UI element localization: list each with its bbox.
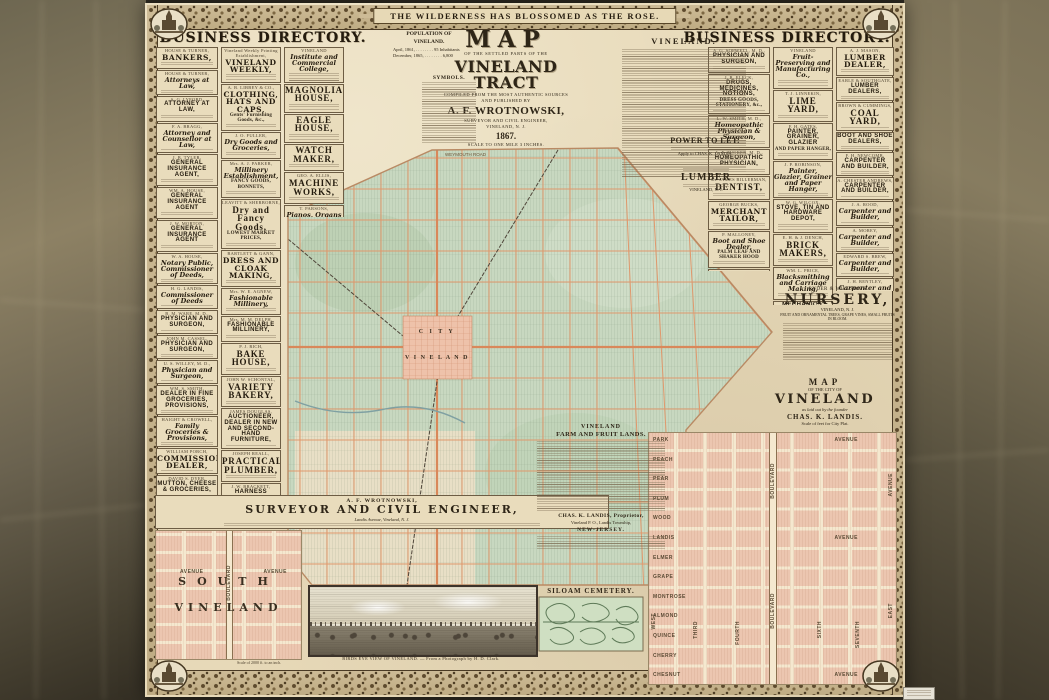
ad-headline: ATTORNEY AT LAW, [157, 102, 217, 113]
ad-headline: GENERAL INSURANCE AGENT [157, 194, 217, 211]
fine-print [161, 62, 213, 67]
street-label: ELMER [653, 555, 673, 561]
fine-print [226, 335, 276, 340]
directory-ad: A. MOREY,Carpenter and Builder, [836, 227, 894, 252]
vineland-label: VINELAND [156, 601, 301, 614]
directory-ad: VINELANDFruit-Preserving and Manufacturi… [773, 47, 833, 89]
directory-ad: JOHN W. SCHONTAL,VARIETY BAKERY, [221, 376, 281, 408]
fine-print [683, 168, 729, 172]
population-line-1865: December, 1865, . . . . . . . . 6,800 [393, 53, 465, 60]
nursery-heading: NURSERY, [778, 293, 897, 308]
fine-print [778, 153, 828, 158]
ad-headline: LUMBER DEALER, [837, 54, 893, 68]
street-label: GRAPE [653, 574, 673, 580]
ad-headline: LUMBER DEALERS, [837, 84, 893, 95]
directory-ad: H. G. LANDIS,Commissioner of Deeds [156, 285, 218, 310]
directory-ad: WILLIAM PORCH,COMMISSION DEALER, [156, 448, 218, 475]
fine-print [226, 475, 276, 480]
directory-ad: HOUSE & TURNER,Attorneys at Law, [156, 70, 218, 95]
fine-print [778, 115, 828, 120]
article-heading: VINELAND. [622, 36, 746, 46]
directory-ad: P. J. RICH,BAKE HOUSE, [221, 343, 281, 375]
south-scale-note: Scale of 2000 ft. to an inch. [237, 660, 281, 665]
numbered-street-label: SIXTH [817, 621, 823, 638]
population-block: POPULATION OF VINELAND. April, 1861, . .… [393, 30, 465, 60]
ad-headline: GENERAL INSURANCE AGENT [157, 227, 217, 244]
fine-print [289, 73, 339, 80]
south-label: SOUTH [156, 575, 301, 588]
fine-print [226, 74, 276, 81]
ad-headline: Fruit-Preserving and Manufacturing Co., [774, 54, 832, 79]
ad-headline: EAGLE HOUSE, [285, 116, 343, 133]
city-title-map: MAP [753, 377, 897, 387]
east-label: EAST [888, 603, 894, 618]
ad-headline: PHYSICIAN AND SURGEON, [157, 317, 217, 328]
ad-subheadline: FANCY GOODS, BONNETS, [222, 179, 280, 190]
city-title-scale: Scale of feet for City Plat. [753, 421, 897, 426]
street-label: CHERRY [653, 653, 677, 659]
avenue-label: AVENUE [835, 535, 858, 541]
directory-ad: Vineland Weekly Printing Establishment,V… [221, 47, 281, 83]
nursery-ad: RYDER & WILLSON'S NURSERY, VINELAND, N. … [778, 287, 897, 361]
ad-subheadline: PALM LEAF AND SHAKER HOOD [709, 250, 769, 261]
fine-print [161, 179, 213, 184]
ad-headline: CARPENTER AND BUILDER, [837, 159, 893, 170]
ad-headline: PRACTICAL PLUMBER, [222, 457, 280, 474]
symbols-heading: SYMBOLS. [421, 75, 477, 81]
fine-print [161, 279, 213, 281]
fine-print [778, 224, 828, 231]
directory-ad: WM. S. SMITH,DEALER IN FINE GROCERIES, P… [156, 385, 218, 414]
church-vignette-icon [861, 7, 901, 41]
fine-print [161, 212, 213, 217]
directory-ad: DAVID S. DYER,MUTTON, CHEESE & GROCERIES… [156, 475, 218, 495]
directory-ad: H. D. CLARK,PHOTOGRAPHER,Post Office Bui… [708, 269, 770, 271]
fine-print [226, 280, 276, 285]
power-apply-line: Apply to CHAS. K. LANDIS. [663, 152, 747, 157]
ad-headline: Painter, Glazier, Grainer and Paper Hang… [774, 168, 832, 193]
ad-headline: COMMISSION DEALER, [157, 455, 217, 469]
fine-print [778, 80, 828, 87]
city-center-plat: C I T Y V I N E L A N D [403, 316, 472, 379]
farm-lands-block: VINELAND FARM AND FRUIT LANDS. CHAS. K. … [537, 424, 665, 550]
left-directory-column-1: HOUSE & TURNER,BANKERS,HOUSE & TURNER,At… [155, 47, 219, 495]
fine-print [161, 115, 213, 120]
nursery-line: FRUIT AND ORNAMENTAL TREES, GRAPE VINES,… [778, 313, 897, 321]
fine-print [161, 330, 213, 332]
boulevard-label: BOULEVARD [770, 593, 776, 629]
ad-headline: Dry Goods and Groceries, [222, 139, 280, 151]
directory-ad: J. B. TYLER,GENERAL INSURANCE AGENT, [156, 154, 218, 186]
power-to-let-ad: POWER TO LET. Apply to CHAS. K. LANDIS. [663, 137, 747, 157]
population-line-1861: April, 1861, . . . . . . . . 95 Inhabita… [393, 47, 465, 54]
fine-print [226, 308, 276, 313]
directory-ad: Mrs. M. M. DELPH,FASHIONABLE MILLINERY, [221, 316, 281, 342]
directory-ad: JOSEPH REALL,PRACTICAL PLUMBER, [221, 450, 281, 482]
fine-print [289, 197, 339, 202]
right-directory-column-3: A. J. MASON,LUMBER DEALER,EARLE & SOUTHG… [835, 47, 895, 291]
directory-ad: T. PARSONS,Pianos, Organs and Melodeons, [284, 205, 344, 217]
boulevard-label: BOULEVARD [770, 463, 776, 499]
numbered-street-label: SEVENTH [855, 621, 861, 648]
proprietor-line-1: CHAS. K. LANDIS, Proprietor, [537, 513, 665, 520]
directory-ad: BARTLETT & GANN,DRESS AND CLOAK MAKING, [221, 250, 281, 286]
directory-ad: J. P. ROBINSON,Painter, Glazier, Grainer… [773, 161, 833, 198]
directory-ad: JOHN M. CASSEL,PHYSICIAN AND SURGEON, [156, 335, 218, 359]
cemetery-heading: SILOAM CEMETERY. [535, 587, 647, 595]
ad-subheadline: LOWEST MARKET PRICES, [222, 231, 280, 242]
farm-fine-print [537, 441, 665, 511]
ad-headline: BAKE HOUSE, [222, 350, 280, 367]
ad-headline: MAGNOLIA HOUSE, [285, 86, 343, 103]
fine-print [226, 401, 276, 406]
fine-print [289, 164, 339, 169]
directory-ad: T. J. LINNEKIN,LIME YARD, [773, 90, 833, 122]
directory-ad: A. G. LYFORD,ATTORNEY AT LAW, [156, 96, 218, 122]
fine-print [841, 127, 889, 129]
birdseye-engraving-hatch [310, 587, 536, 655]
right-directory-column-2: VINELANDFruit-Preserving and Manufacturi… [772, 47, 834, 305]
ad-subheadline: Gents' Furnishing Goods, &c., [222, 113, 280, 124]
fine-print [161, 470, 213, 472]
directory-ad: P. MALLONEY,Boot and Shoe Dealer,PALM LE… [708, 231, 770, 269]
fine-print [226, 445, 276, 447]
corner-label [903, 687, 935, 700]
ad-subheadline: AND PAPER HANGER, [774, 147, 832, 152]
directory-ad: WM. A. HOUSE,GENERAL INSURANCE AGENT [156, 187, 218, 219]
avenue-vert-label: AVENUE [888, 473, 894, 496]
directory-ad: A. CHESTER ANDREWS,CARPENTER AND BUILDER… [836, 177, 894, 201]
fine-print [907, 690, 931, 696]
ad-headline: BOOT AND SHOE DEALERS, [837, 134, 893, 145]
church-vignette-icon [149, 659, 189, 693]
directory-ad: LEAVITT & SHERBORNE,Dry and Fancy Goods,… [221, 199, 281, 250]
directory-ad: Mrs. W. E. AGNEW,Fashionable Millinery, [221, 288, 281, 315]
ad-headline: Boot and Shoe Dealer, [709, 238, 769, 250]
directory-ad: BOOT AND SHOE DEALERS, [836, 132, 894, 151]
power-heading: POWER TO LET. [663, 137, 747, 146]
ad-headline: CARPENTER AND BUILDER, [837, 184, 893, 195]
fine-print [161, 245, 213, 250]
directory-ad: BROWN & CUMMINGS,COAL YARD, [836, 102, 894, 131]
fine-print [683, 184, 729, 188]
directory-ad: EAGLE HOUSE, [284, 114, 344, 143]
ad-headline: Attorneys at Law, [157, 77, 217, 89]
cemetery-plan [538, 596, 644, 652]
left-directory-column-3: VINELANDInstitute and Commercial College… [283, 47, 345, 217]
avenue-label: AVENUE [835, 672, 858, 678]
directory-ad: W. A. HOUSE,Notary Public, Commissioner … [156, 253, 218, 284]
directory-ad: E. H. & J. DENCH,BRICK MAKERS, [773, 234, 833, 266]
fine-print [161, 90, 213, 92]
numbered-street-label: FOURTH [735, 621, 741, 645]
fine-print [226, 152, 276, 157]
map-poster: C I T Y V I N E L A N D WEYMOUTH ROAD TH… [145, 3, 905, 697]
fine-print [841, 69, 889, 74]
fine-print [161, 410, 213, 412]
fine-print [841, 196, 889, 198]
fine-print [713, 261, 765, 266]
directory-ad: W. G. WILCOX,STOVE, TIN AND HARDWARE DEP… [773, 199, 833, 233]
directory-ad: EDWARD S. BREW,Carpenter and Builder, [836, 253, 894, 278]
ad-headline: Attorney and Counsellor at Law, [157, 130, 217, 149]
fine-print [289, 104, 339, 111]
city-plat: BOULEVARD BOULEVARD WEST EAST AVENUE PAR… [648, 432, 897, 685]
ad-headline: Fashionable Millinery, [222, 295, 280, 307]
directory-ad: A. J. MASON,LUMBER DEALER, [836, 47, 894, 76]
directory-ad: EARLE & SOUTHGATE,LUMBER DEALERS, [836, 77, 894, 101]
directory-ad: F. A. BRAGG,Attorney and Counsellor at L… [156, 123, 218, 154]
street-label: MONTROSE [653, 594, 686, 600]
ad-headline: VARIETY BAKERY, [222, 383, 280, 400]
fine-print [161, 149, 213, 151]
ad-headline: WATCH MAKER, [285, 146, 343, 163]
directory-ad: J. W. MORTON,GENERAL INSURANCE AGENT [156, 220, 218, 252]
fine-print [226, 368, 276, 373]
ad-headline: Millinery Establishment, [222, 167, 280, 179]
ad-headline: PAINTER, GRAINER, GLAZIER [774, 130, 832, 147]
fine-print [161, 442, 213, 444]
ad-headline: MACHINE WORKS, [285, 179, 343, 196]
city-title-vineland: VINELAND [753, 393, 897, 408]
ad-headline: MERCHANT TAILOR, [709, 208, 769, 222]
fine-print [161, 380, 213, 382]
directory-ad: A. B. LIBBEY & CO.,CLOTHING, HATS AND CA… [221, 84, 281, 131]
ad-headline: Notary Public, Commissioner of Deeds, [157, 260, 217, 279]
fine-print [713, 223, 765, 228]
fine-print [226, 191, 276, 196]
city-label-1: C I T Y [419, 329, 456, 335]
fine-print [713, 193, 765, 198]
proprietor-line-2: Vineland P. O., Landis Township, [537, 520, 665, 525]
fine-print [841, 146, 889, 148]
birdseye-view [308, 585, 538, 657]
directory-ad: WATCH MAKER, [284, 144, 344, 171]
ad-headline: Family Groceries & Provisions, [157, 423, 217, 442]
ad-headline: LIME YARD, [774, 97, 832, 114]
fine-print [841, 96, 889, 98]
population-heading: POPULATION OF VINELAND. [393, 30, 465, 47]
ad-headline: DRESS AND CLOAK MAKING, [222, 257, 280, 278]
directory-ad: GEO. A. ELLIS,MACHINE WORKS, [284, 172, 344, 204]
symbols-fine-print [422, 82, 475, 144]
church-vignette-icon [149, 7, 189, 41]
directory-ad: JAMES DOUGLAS,AUCTIONEER, DEALER IN NEW … [221, 408, 281, 449]
proprietor-line-3: NEW-JERSEY. [537, 527, 665, 534]
fine-print [778, 259, 828, 264]
directory-ad: GEORGE BUCKS,MERCHANT TAILOR, [708, 201, 770, 230]
fine-print [841, 247, 889, 249]
banner-text: THE WILDERNESS HAS BLOSSOMED AS THE ROSE… [390, 11, 659, 21]
directory-ad: Mrs. A. J. PARKER,Millinery Establishmen… [221, 160, 281, 198]
directory-ad: J. O. FULLER,Dry Goods and Groceries, [221, 132, 281, 159]
fine-print [224, 523, 540, 526]
ad-headline: CLOTHING, HATS AND CAPS, [222, 91, 280, 112]
symbols-legend: SYMBOLS. [421, 75, 477, 144]
city-title-landis: CHAS. K. LANDIS. [753, 413, 897, 421]
fine-print [778, 193, 828, 195]
left-directory-column-2: Vineland Weekly Printing Establishment,V… [220, 47, 282, 495]
ad-headline: GENERAL INSURANCE AGENT, [157, 161, 217, 178]
farm-heading-2: FARM AND FRUIT LANDS. [537, 431, 665, 439]
article-fine-print [622, 49, 746, 177]
photo-background: C I T Y V I N E L A N D WEYMOUTH ROAD TH… [0, 0, 1049, 700]
street-label: QUINCE [653, 633, 675, 639]
ad-headline: Pianos, Organs and Melodeons, [285, 212, 343, 217]
directory-ad: B. M. WARE, M. D.,PHYSICIAN AND SURGEON, [156, 310, 218, 334]
fine-print [537, 536, 665, 550]
directory-ad: MAGNOLIA HOUSE, [284, 84, 344, 113]
lumber-place: VINELAND, N. J. [673, 188, 739, 193]
ad-headline: COAL YARD, [837, 109, 893, 126]
ad-headline: Commissioner of Deeds [157, 292, 217, 304]
ad-headline: Physician and Surgeon, [157, 367, 217, 379]
street-label: CHESNUT [653, 672, 681, 678]
fine-print [226, 124, 276, 129]
ad-headline: BANKERS, [157, 54, 217, 61]
directory-ad: VINELANDInstitute and Commercial College… [284, 47, 344, 83]
ad-headline: Carpenter and Builder, [837, 208, 893, 220]
banner-ribbon: THE WILDERNESS HAS BLOSSOMED AS THE ROSE… [373, 8, 676, 24]
ad-headline: DEALER IN FINE GROCERIES, PROVISIONS, [157, 392, 217, 409]
nursery-fine-print [783, 323, 892, 361]
ad-headline: MUTTON, CHEESE & GROCERIES, [157, 482, 217, 493]
city-label-2: V I N E L A N D [405, 355, 469, 361]
fine-print [161, 354, 213, 356]
street-label: ALMOND [653, 613, 678, 619]
church-vignette-icon [861, 659, 901, 693]
fine-print [841, 222, 889, 224]
avenue-label: AVENUE [835, 437, 858, 443]
south-vineland-plat: BOULEVARD AVENUE AVENUE SOUTH VINELAND [155, 530, 302, 660]
directory-ad: J. W. BRACKETT,HARNESS MAKER & CARRIAGE … [221, 483, 281, 495]
lumber-heading: LUMBER [673, 172, 739, 183]
ad-headline: Carpenter and Builder, [837, 260, 893, 272]
numbered-street-label: THIRD [693, 621, 699, 639]
ad-headline: AUCTIONEER, DEALER IN NEW AND SECOND-HAN… [222, 415, 280, 443]
ad-headline: Dry and Fancy Goods, [222, 206, 280, 232]
ad-headline: PHYSICIAN AND SURGEON, [157, 342, 217, 353]
farm-heading-1: VINELAND [537, 424, 665, 431]
directory-ad: HAIGHT & CROWELL,Family Groceries & Prov… [156, 416, 218, 447]
ad-headline: BRICK MAKERS, [774, 241, 832, 258]
directory-ad: F. H. NEWCOMB,CARPENTER AND BUILDER, [836, 152, 894, 176]
fine-print [671, 147, 738, 152]
fine-print [289, 134, 339, 141]
directory-ad: HOUSE & TURNER,BANKERS, [156, 47, 218, 69]
ad-headline: Institute and Commercial College, [285, 54, 343, 73]
directory-ad: J. A. ROOD,Carpenter and Builder, [836, 201, 894, 226]
ad-headline: STOVE, TIN AND HARDWARE DEPOT, [774, 206, 832, 223]
road-label: WEYMOUTH ROAD [445, 152, 487, 157]
siloam-cemetery-block: SILOAM CEMETERY. [535, 587, 647, 657]
ad-headline: FASHIONABLE MILLINERY, [222, 323, 280, 334]
directory-ad: F. H. GATES,PAINTER, GRAINER, GLAZIERAND… [773, 123, 833, 160]
directory-ad: U. S. WILLEY, M. D.,Physician and Surgeo… [156, 360, 218, 385]
birdseye-caption: BIRDS EYE VIEW OF VINELAND. — From a Pho… [308, 656, 534, 661]
ad-headline: VINELAND WEEKLY, [222, 59, 280, 73]
fine-print [841, 273, 889, 275]
fine-print [161, 305, 213, 307]
fine-print [226, 243, 276, 248]
fine-print [841, 171, 889, 173]
ad-headline: Carpenter and Builder, [837, 234, 893, 246]
city-map-title: MAP OF THE CITY OF VINELAND as laid out … [753, 377, 897, 426]
lumber-ad: LUMBER VINELAND, N. J. [673, 167, 739, 193]
